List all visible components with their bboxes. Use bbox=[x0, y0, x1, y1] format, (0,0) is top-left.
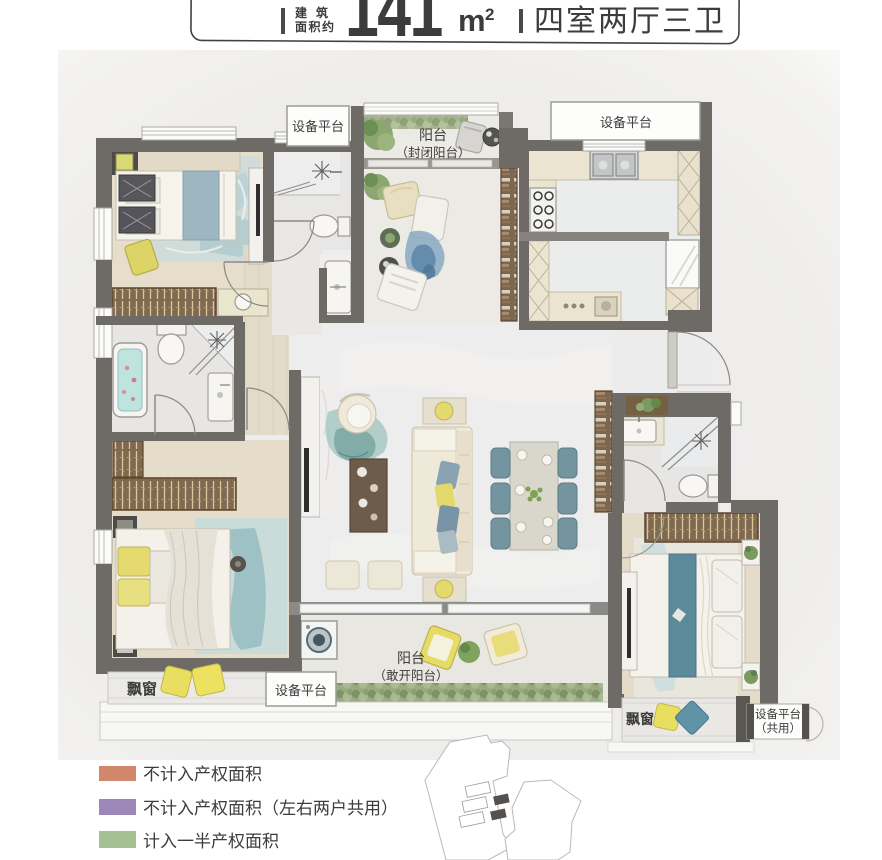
svg-text:建筑: 建筑 bbox=[294, 5, 337, 20]
svg-text:（敢开阳台）: （敢开阳台） bbox=[373, 668, 448, 683]
svg-text:计入一半产权面积: 计入一半产权面积 bbox=[143, 832, 279, 851]
svg-text:面积约: 面积约 bbox=[295, 19, 336, 34]
svg-text:（共用）: （共用） bbox=[755, 722, 801, 735]
svg-text:四室两厅三卫: 四室两厅三卫 bbox=[534, 5, 726, 38]
svg-text:（封闭阳台）: （封闭阳台） bbox=[395, 145, 470, 160]
svg-text:141: 141 bbox=[345, 0, 442, 53]
svg-text:飘窗: 飘窗 bbox=[626, 711, 654, 727]
svg-text:阳台: 阳台 bbox=[419, 127, 447, 143]
svg-text:飘窗: 飘窗 bbox=[127, 680, 157, 698]
svg-text:不计入产权面积: 不计入产权面积 bbox=[143, 765, 262, 784]
svg-text:2: 2 bbox=[485, 5, 494, 24]
svg-text:m: m bbox=[458, 3, 486, 38]
svg-text:不计入产权面积（左右两户共用）: 不计入产权面积（左右两户共用） bbox=[143, 799, 398, 818]
svg-text:设备平台: 设备平台 bbox=[292, 119, 344, 134]
svg-text:设备平台: 设备平台 bbox=[275, 683, 327, 698]
svg-text:阳台: 阳台 bbox=[397, 650, 425, 666]
svg-text:设备平台: 设备平台 bbox=[600, 115, 652, 130]
svg-text:设备平台: 设备平台 bbox=[755, 707, 801, 721]
